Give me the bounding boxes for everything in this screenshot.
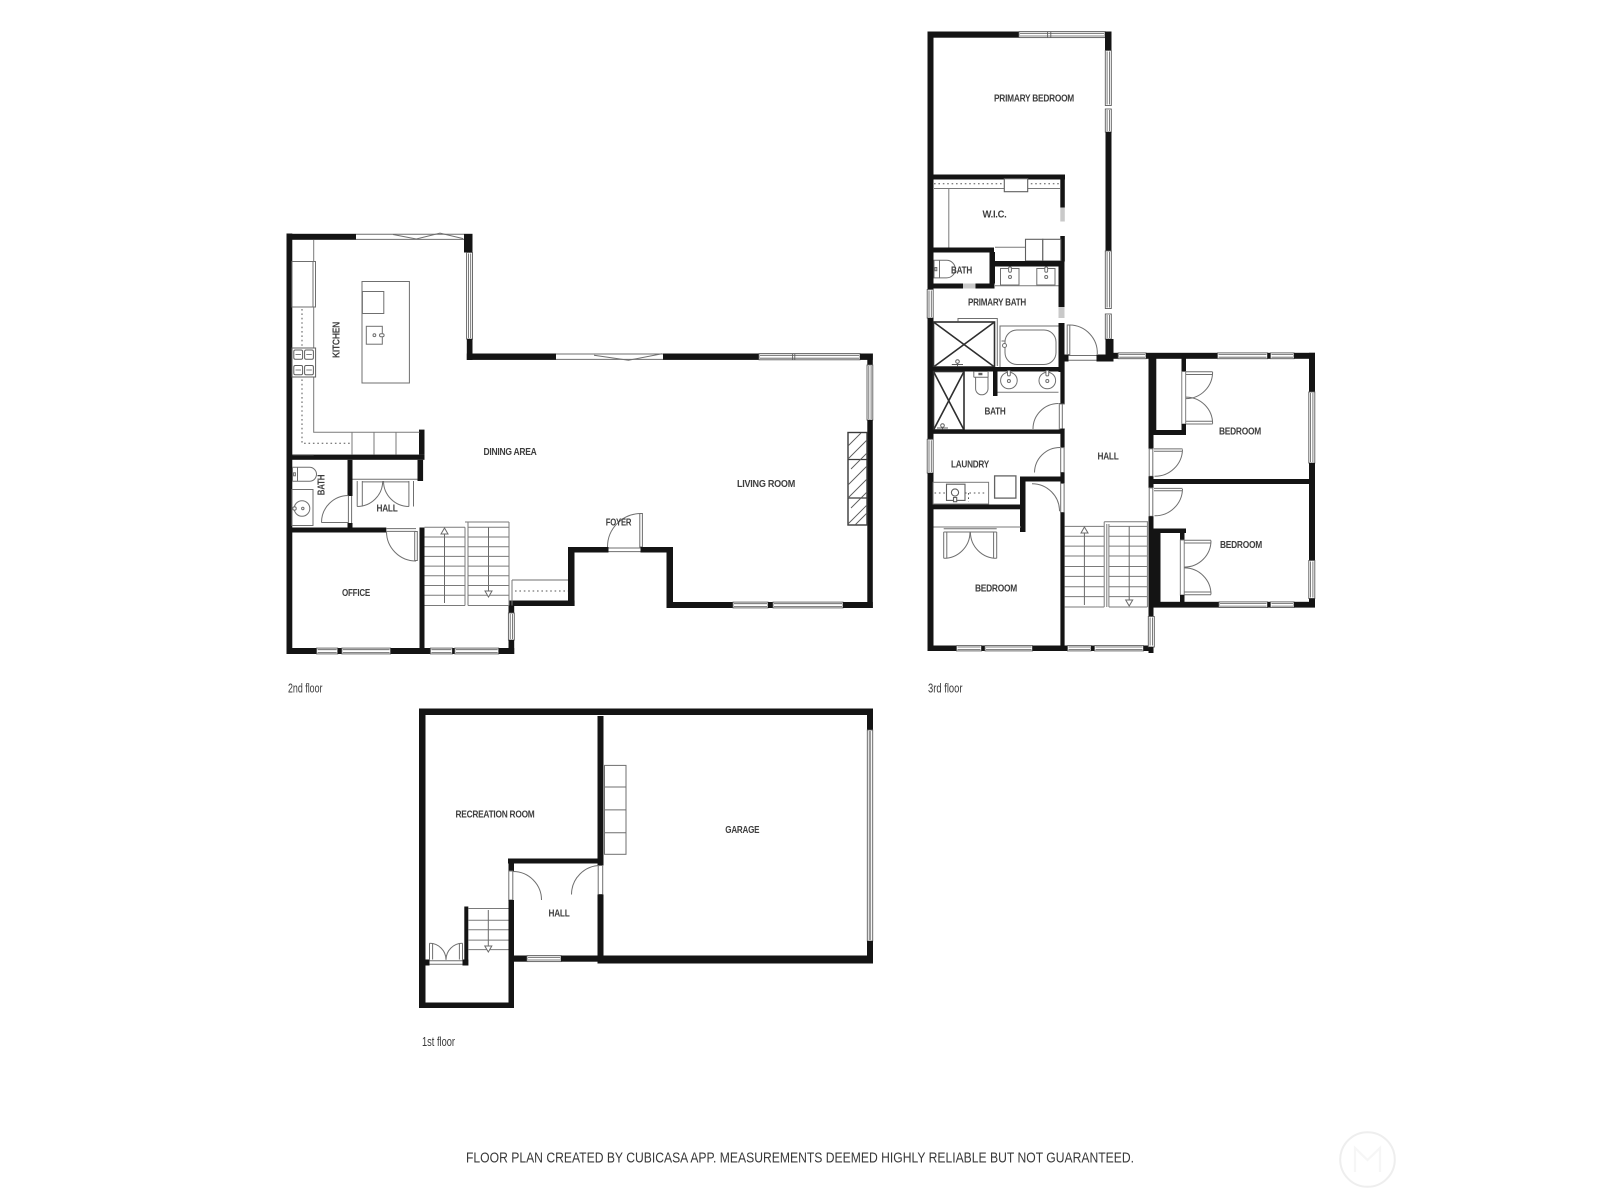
svg-text:BEDROOM: BEDROOM	[1219, 427, 1261, 438]
svg-text:BATH: BATH	[951, 266, 972, 277]
svg-text:LIVING ROOM: LIVING ROOM	[737, 479, 795, 490]
svg-text:HALL: HALL	[549, 909, 570, 920]
svg-text:RECREATION ROOM: RECREATION ROOM	[456, 810, 535, 821]
svg-text:DINING AREA: DINING AREA	[484, 447, 537, 458]
svg-text:KITCHEN: KITCHEN	[332, 322, 343, 358]
svg-text:FLOOR PLAN CREATED BY CUBICASA: FLOOR PLAN CREATED BY CUBICASA APP. MEAS…	[466, 1150, 1134, 1167]
svg-text:BEDROOM: BEDROOM	[1220, 540, 1262, 551]
svg-text:PRIMARY BEDROOM: PRIMARY BEDROOM	[994, 94, 1074, 105]
svg-text:BEDROOM: BEDROOM	[975, 584, 1017, 595]
svg-text:BATH: BATH	[985, 407, 1006, 418]
svg-text:1st floor: 1st floor	[422, 1035, 455, 1049]
svg-text:GARAGE: GARAGE	[725, 825, 760, 836]
svg-text:BATH: BATH	[317, 475, 328, 496]
svg-text:HALL: HALL	[1098, 452, 1119, 463]
svg-text:3rd floor: 3rd floor	[928, 682, 963, 696]
svg-text:HALL: HALL	[377, 504, 398, 515]
svg-text:LAUNDRY: LAUNDRY	[951, 460, 990, 471]
svg-text:FOYER: FOYER	[606, 518, 632, 529]
svg-text:W.I.C.: W.I.C.	[983, 210, 1007, 221]
svg-text:2nd floor: 2nd floor	[288, 682, 323, 696]
svg-text:PRIMARY BATH: PRIMARY BATH	[968, 298, 1026, 309]
svg-text:OFFICE: OFFICE	[342, 588, 370, 599]
